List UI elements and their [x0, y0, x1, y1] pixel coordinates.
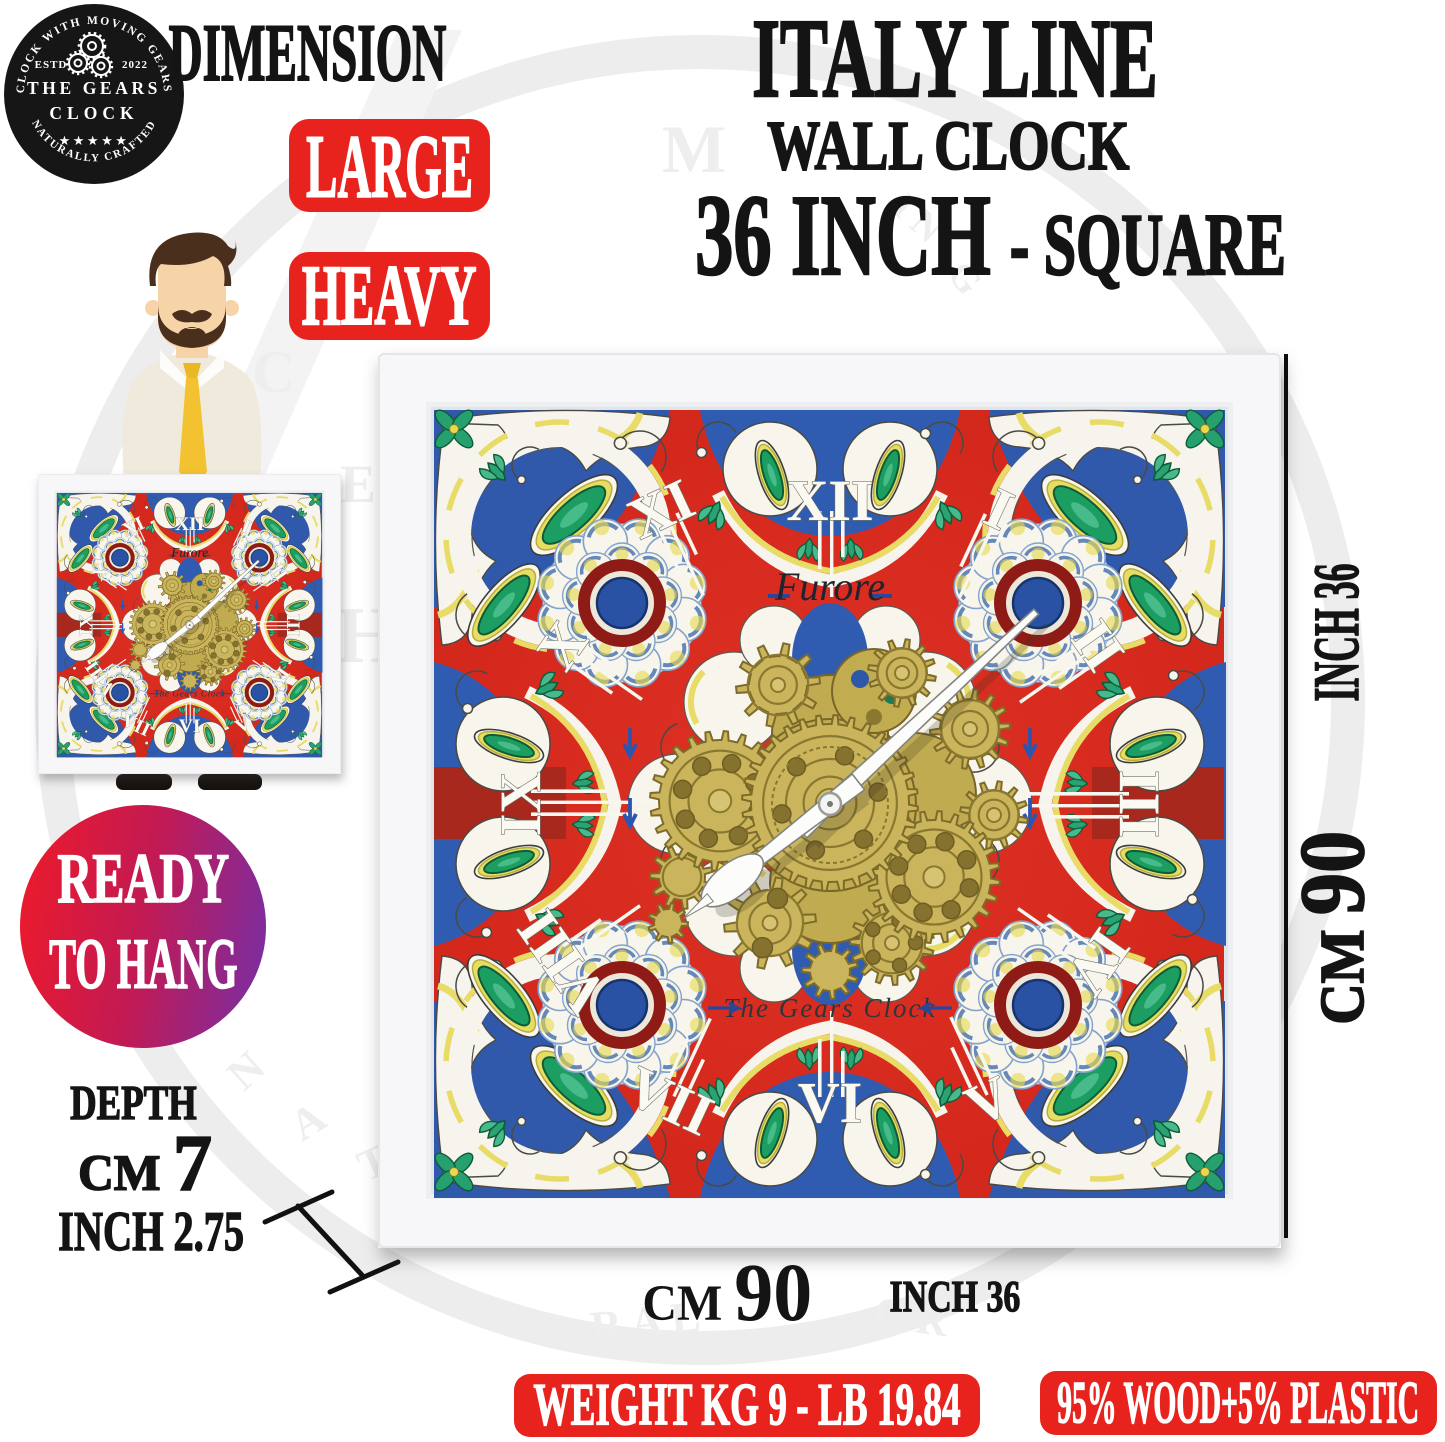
svg-text:CLOCK: CLOCK [49, 103, 138, 123]
svg-text:E: E [340, 454, 376, 514]
svg-text:A: A [281, 1092, 334, 1151]
svg-text:★★★★★: ★★★★★ [59, 133, 130, 148]
